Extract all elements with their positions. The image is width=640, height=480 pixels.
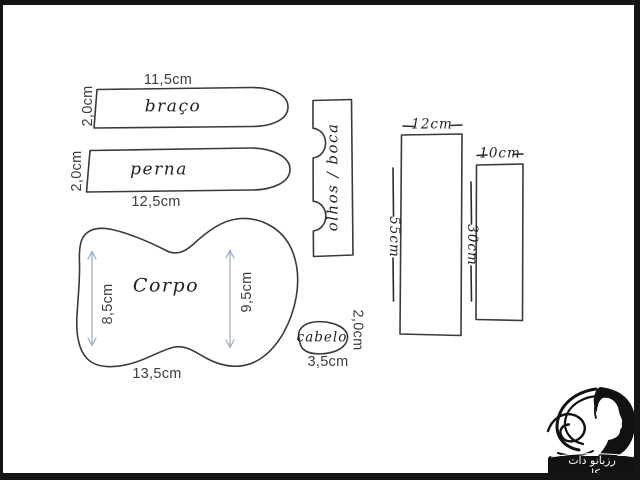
perna-outline xyxy=(87,148,291,192)
corpo-right-height-label: 9,5cm xyxy=(240,272,255,313)
braco-height-label: 2,0cm xyxy=(81,86,96,127)
rect-small-outline xyxy=(476,164,523,321)
corpo-width-label: 13,5cm xyxy=(132,367,181,382)
corpo-left-height-label: 8,5cm xyxy=(101,284,116,325)
rect-small-height-label: 30cm xyxy=(464,224,478,266)
cabelo-width-label: 3,5cm xyxy=(308,355,349,370)
olhos-boca-name-label: olhos / boca xyxy=(326,123,341,232)
cabelo-name-label: cabelo xyxy=(297,331,348,345)
rect-small-width-label: 10cm xyxy=(479,147,521,161)
rect-large-outline xyxy=(400,134,462,336)
rect-large-height-label: 55cm xyxy=(386,216,400,258)
sewing-pattern-sheet: 11,5cm 2,0cm 2,0cm 12,5cm 8,5cm 9,5cm 13… xyxy=(0,0,640,480)
perna-height-label: 2,0cm xyxy=(70,151,85,192)
corpo-name-label: Corpo xyxy=(133,277,199,296)
braco-width-label: 11,5cm xyxy=(144,73,192,88)
cabelo-height-label: 2,0cm xyxy=(350,310,365,351)
pattern-drawing xyxy=(0,0,640,480)
perna-width-label: 12,5cm xyxy=(131,195,180,210)
braco-name-label: braço xyxy=(145,99,201,116)
watermark-site-text: رزبانو دات کام xyxy=(568,454,616,480)
perna-name-label: perna xyxy=(130,162,188,179)
rect-large-width-label: 12cm xyxy=(411,118,453,132)
corpo-right-arrow xyxy=(226,251,234,348)
corpo-left-arrow xyxy=(88,252,96,346)
